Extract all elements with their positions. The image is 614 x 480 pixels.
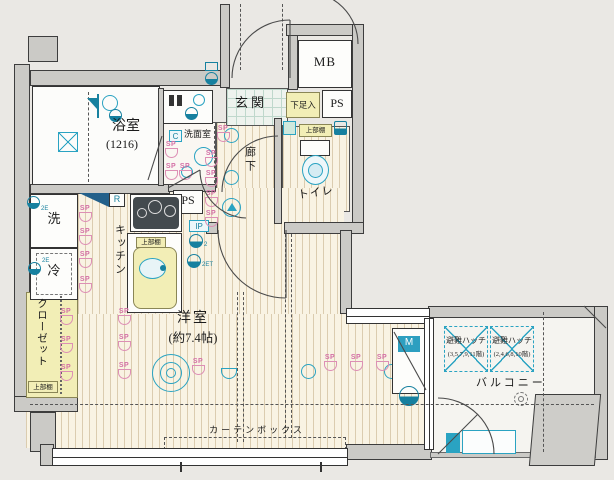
outlet-label: 2 (204, 242, 207, 248)
wall (346, 444, 432, 460)
wall (30, 70, 228, 86)
floor-plan-canvas: 浴室 (1216) C 洗面室 PS IP 2 2ET SP SP SP 廊下 … (0, 0, 614, 480)
sp-marker: SP (116, 308, 132, 325)
m-fixture-drum-icon (399, 386, 419, 406)
doorbell-icon (205, 62, 218, 71)
stove-burner-icon (164, 205, 176, 217)
downlight-icon (224, 170, 239, 185)
curtain-box-label: カーテンボックス (168, 426, 346, 435)
shower-head-icon (87, 98, 97, 109)
sp-marker: SP (203, 190, 219, 207)
doorbell-button-icon (205, 72, 218, 85)
hatch-floors-label: (2,4,6,8,10階) (494, 348, 531, 358)
ps-top-label: PS (322, 97, 352, 110)
washroom-label: 洗面室 (184, 130, 211, 139)
balcony-label: バルコニー (476, 378, 546, 390)
washer-label: 洗 (30, 212, 78, 226)
sp-marker: SP (203, 170, 219, 187)
wall (30, 184, 170, 194)
mb-label: MB (298, 55, 352, 69)
balcony-door-window (424, 318, 434, 450)
south-window (52, 448, 348, 466)
beam-dashed-line (291, 234, 292, 438)
beam-dashed-line (237, 292, 238, 442)
kitchen-label: キッチン (113, 224, 125, 276)
shower-pole-icon (97, 94, 99, 118)
sp-marker: SP (77, 251, 93, 268)
outlet-icon (187, 254, 201, 268)
sp-marker: SP (58, 336, 74, 353)
beam-dashed-line (285, 234, 286, 438)
toilet-upper-shelf-label: 上部棚 (299, 124, 332, 137)
beam-dashed-line (240, 4, 241, 70)
hatch-name-label: 避難ハッチ (446, 335, 486, 346)
wall (340, 230, 352, 314)
toilet-fixture-icon (334, 121, 347, 135)
sp-marker: SP (215, 125, 231, 142)
beam-dashed-line (243, 292, 244, 442)
beam-dashed-line (282, 4, 283, 70)
wall (28, 36, 58, 62)
evacuation-hatch-2: 避難ハッチ (2,4,6,8,10階) (490, 326, 534, 372)
bath-window-icon (58, 132, 78, 152)
outlet-icon (189, 234, 203, 248)
fridge-label: 冷 (30, 264, 78, 278)
sp-marker: SP (322, 354, 338, 371)
laundry-dial-icon (193, 94, 205, 106)
stove-burner-icon (137, 208, 147, 218)
evacuation-hatch-1: 避難ハッチ (3,5,7,9,11階) (444, 326, 488, 372)
corridor-label: 廊下 (243, 146, 255, 174)
sp-marker: SP (374, 354, 390, 371)
window-tick (320, 462, 322, 472)
laundry-faucet-icon (169, 95, 174, 106)
hatch-name-label: 避難ハッチ (492, 335, 532, 346)
sp-marker: SP (77, 276, 93, 293)
laundry-faucet-icon (177, 95, 182, 106)
ps-mid-label: PS (173, 194, 203, 207)
toilet-tank-icon (300, 140, 330, 156)
wall (352, 24, 364, 230)
sp-marker: SP (190, 358, 206, 375)
room-size-label: (約7.4帖) (145, 332, 241, 345)
wall (220, 4, 230, 88)
outlet-label: 2ET (202, 262, 213, 268)
kitchen-upper-shelf-label: 上部棚 (136, 237, 166, 248)
drain-icon (518, 396, 524, 402)
sp-marker: SP (77, 205, 93, 222)
sp-marker: SP (58, 308, 74, 325)
sp-marker: SP (177, 163, 193, 180)
room-name-label: 洋室 (150, 312, 236, 327)
sp-marker: SP (116, 362, 132, 379)
sp-marker: SP (58, 364, 74, 381)
outlet-icon (27, 196, 40, 209)
hatch-floors-label: (3,5,7,9,11階) (448, 348, 485, 358)
sp-marker: SP (348, 354, 364, 371)
wall (274, 118, 282, 224)
ceiling-light-icon (166, 368, 176, 378)
toilet-seat-icon (308, 163, 323, 178)
r-badge-label: R (109, 195, 125, 204)
vent-triangle-icon (227, 203, 237, 211)
wall (288, 34, 298, 90)
closet-label: クローゼット (36, 298, 47, 367)
downlight-icon (301, 364, 316, 379)
mb-door-arc (306, 0, 358, 44)
bathroom-label: 浴室 (96, 120, 156, 135)
sp-marker: SP (203, 150, 219, 167)
kitchen-faucet-icon (160, 265, 166, 271)
stove-burner-icon (148, 200, 162, 214)
window-tick (180, 462, 182, 472)
shoe-cabinet: 下足入 (286, 92, 320, 118)
ac-outdoor-unit-icon (462, 430, 516, 454)
ac-pipe-box-icon (446, 433, 460, 453)
sp-marker: SP (116, 334, 132, 351)
sp-marker: SP (203, 210, 219, 227)
genkan-label: 玄関 (235, 96, 267, 110)
wall (284, 222, 364, 234)
sp-marker: SP (77, 228, 93, 245)
toilet-cistern-icon (283, 121, 296, 135)
east-window (346, 308, 430, 324)
laundry-drum-icon (185, 107, 198, 120)
closet-upper-shelf-label: 上部棚 (28, 381, 58, 393)
beam-dashed-line (30, 404, 594, 405)
bathroom-size-label: (1216) (92, 138, 152, 151)
sp-marker: SP (163, 141, 179, 158)
m-badge-label: M (398, 338, 420, 349)
balcony-north-wall (428, 306, 606, 318)
